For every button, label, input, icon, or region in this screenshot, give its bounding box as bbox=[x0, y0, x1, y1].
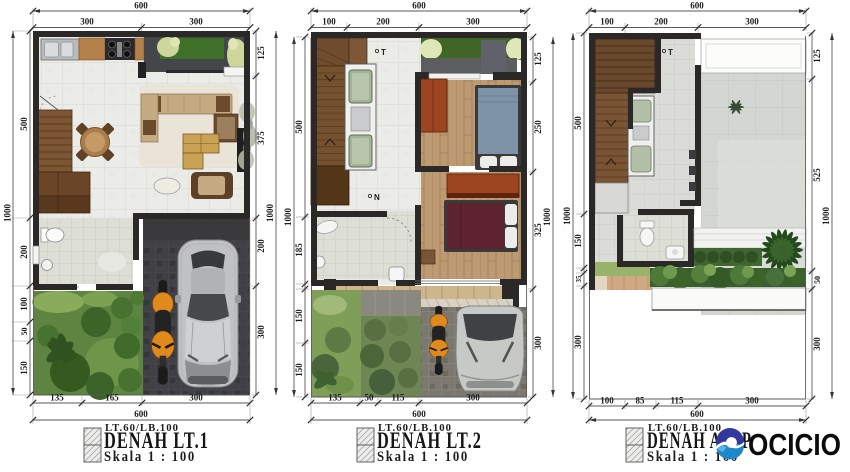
svg-text:Skala 1 : 100: Skala 1 : 100 bbox=[104, 449, 196, 465]
svg-text:500: 500 bbox=[573, 116, 583, 130]
svg-text:85: 85 bbox=[636, 396, 646, 406]
svg-text:200: 200 bbox=[19, 245, 29, 259]
svg-text:100: 100 bbox=[600, 396, 614, 406]
svg-text:600: 600 bbox=[690, 409, 704, 419]
svg-text:300: 300 bbox=[745, 17, 759, 27]
svg-text:185: 185 bbox=[294, 243, 304, 257]
svg-text:600: 600 bbox=[690, 1, 704, 11]
svg-text:1000: 1000 bbox=[3, 204, 13, 223]
svg-text:150: 150 bbox=[294, 363, 304, 377]
svg-text:100: 100 bbox=[19, 297, 29, 311]
svg-text:OCICIO: OCICIO bbox=[748, 427, 841, 462]
svg-text:T: T bbox=[381, 48, 386, 57]
svg-text:250: 250 bbox=[533, 120, 543, 134]
svg-text:600: 600 bbox=[134, 409, 148, 419]
svg-text:300: 300 bbox=[745, 396, 759, 406]
svg-text:115: 115 bbox=[391, 393, 405, 403]
svg-text:150: 150 bbox=[19, 361, 29, 375]
svg-text:375: 375 bbox=[256, 131, 266, 145]
svg-text:125: 125 bbox=[256, 46, 266, 60]
svg-text:Skala 1 : 100: Skala 1 : 100 bbox=[377, 449, 469, 465]
svg-text:150: 150 bbox=[294, 309, 304, 323]
svg-text:300: 300 bbox=[466, 17, 480, 27]
svg-text:600: 600 bbox=[134, 1, 148, 11]
svg-text:115: 115 bbox=[670, 396, 684, 406]
svg-text:1000: 1000 bbox=[265, 204, 275, 223]
svg-text:N: N bbox=[374, 193, 380, 202]
svg-text:1000: 1000 bbox=[542, 208, 552, 227]
svg-text:300: 300 bbox=[80, 17, 94, 27]
svg-text:300: 300 bbox=[573, 335, 583, 349]
svg-text:500: 500 bbox=[19, 117, 29, 131]
svg-text:300: 300 bbox=[256, 325, 266, 339]
svg-text:100: 100 bbox=[600, 17, 614, 27]
svg-text:1000: 1000 bbox=[821, 207, 831, 226]
svg-text:1000: 1000 bbox=[562, 207, 572, 226]
svg-text:50: 50 bbox=[813, 276, 822, 284]
svg-text:600: 600 bbox=[412, 1, 426, 11]
svg-text:200: 200 bbox=[256, 239, 266, 253]
svg-text:35: 35 bbox=[575, 275, 583, 283]
svg-text:300: 300 bbox=[812, 337, 822, 351]
svg-text:100: 100 bbox=[322, 17, 336, 27]
svg-text:165: 165 bbox=[105, 393, 119, 403]
svg-text:525: 525 bbox=[812, 168, 822, 182]
svg-text:300: 300 bbox=[466, 393, 480, 403]
svg-text:300: 300 bbox=[189, 393, 203, 403]
svg-text:T: T bbox=[668, 48, 673, 57]
svg-text:300: 300 bbox=[533, 336, 543, 350]
svg-text:135: 135 bbox=[328, 393, 342, 403]
svg-text:1000: 1000 bbox=[283, 208, 293, 227]
svg-text:200: 200 bbox=[376, 17, 390, 27]
svg-text:125: 125 bbox=[533, 52, 543, 66]
svg-text:50: 50 bbox=[365, 393, 375, 403]
svg-text:135: 135 bbox=[50, 393, 64, 403]
svg-text:500: 500 bbox=[294, 120, 304, 134]
svg-text:150: 150 bbox=[573, 234, 583, 248]
svg-text:50: 50 bbox=[20, 328, 29, 336]
svg-text:200: 200 bbox=[654, 17, 668, 27]
svg-text:125: 125 bbox=[812, 49, 822, 63]
svg-text:300: 300 bbox=[189, 17, 203, 27]
svg-text:600: 600 bbox=[412, 409, 426, 419]
